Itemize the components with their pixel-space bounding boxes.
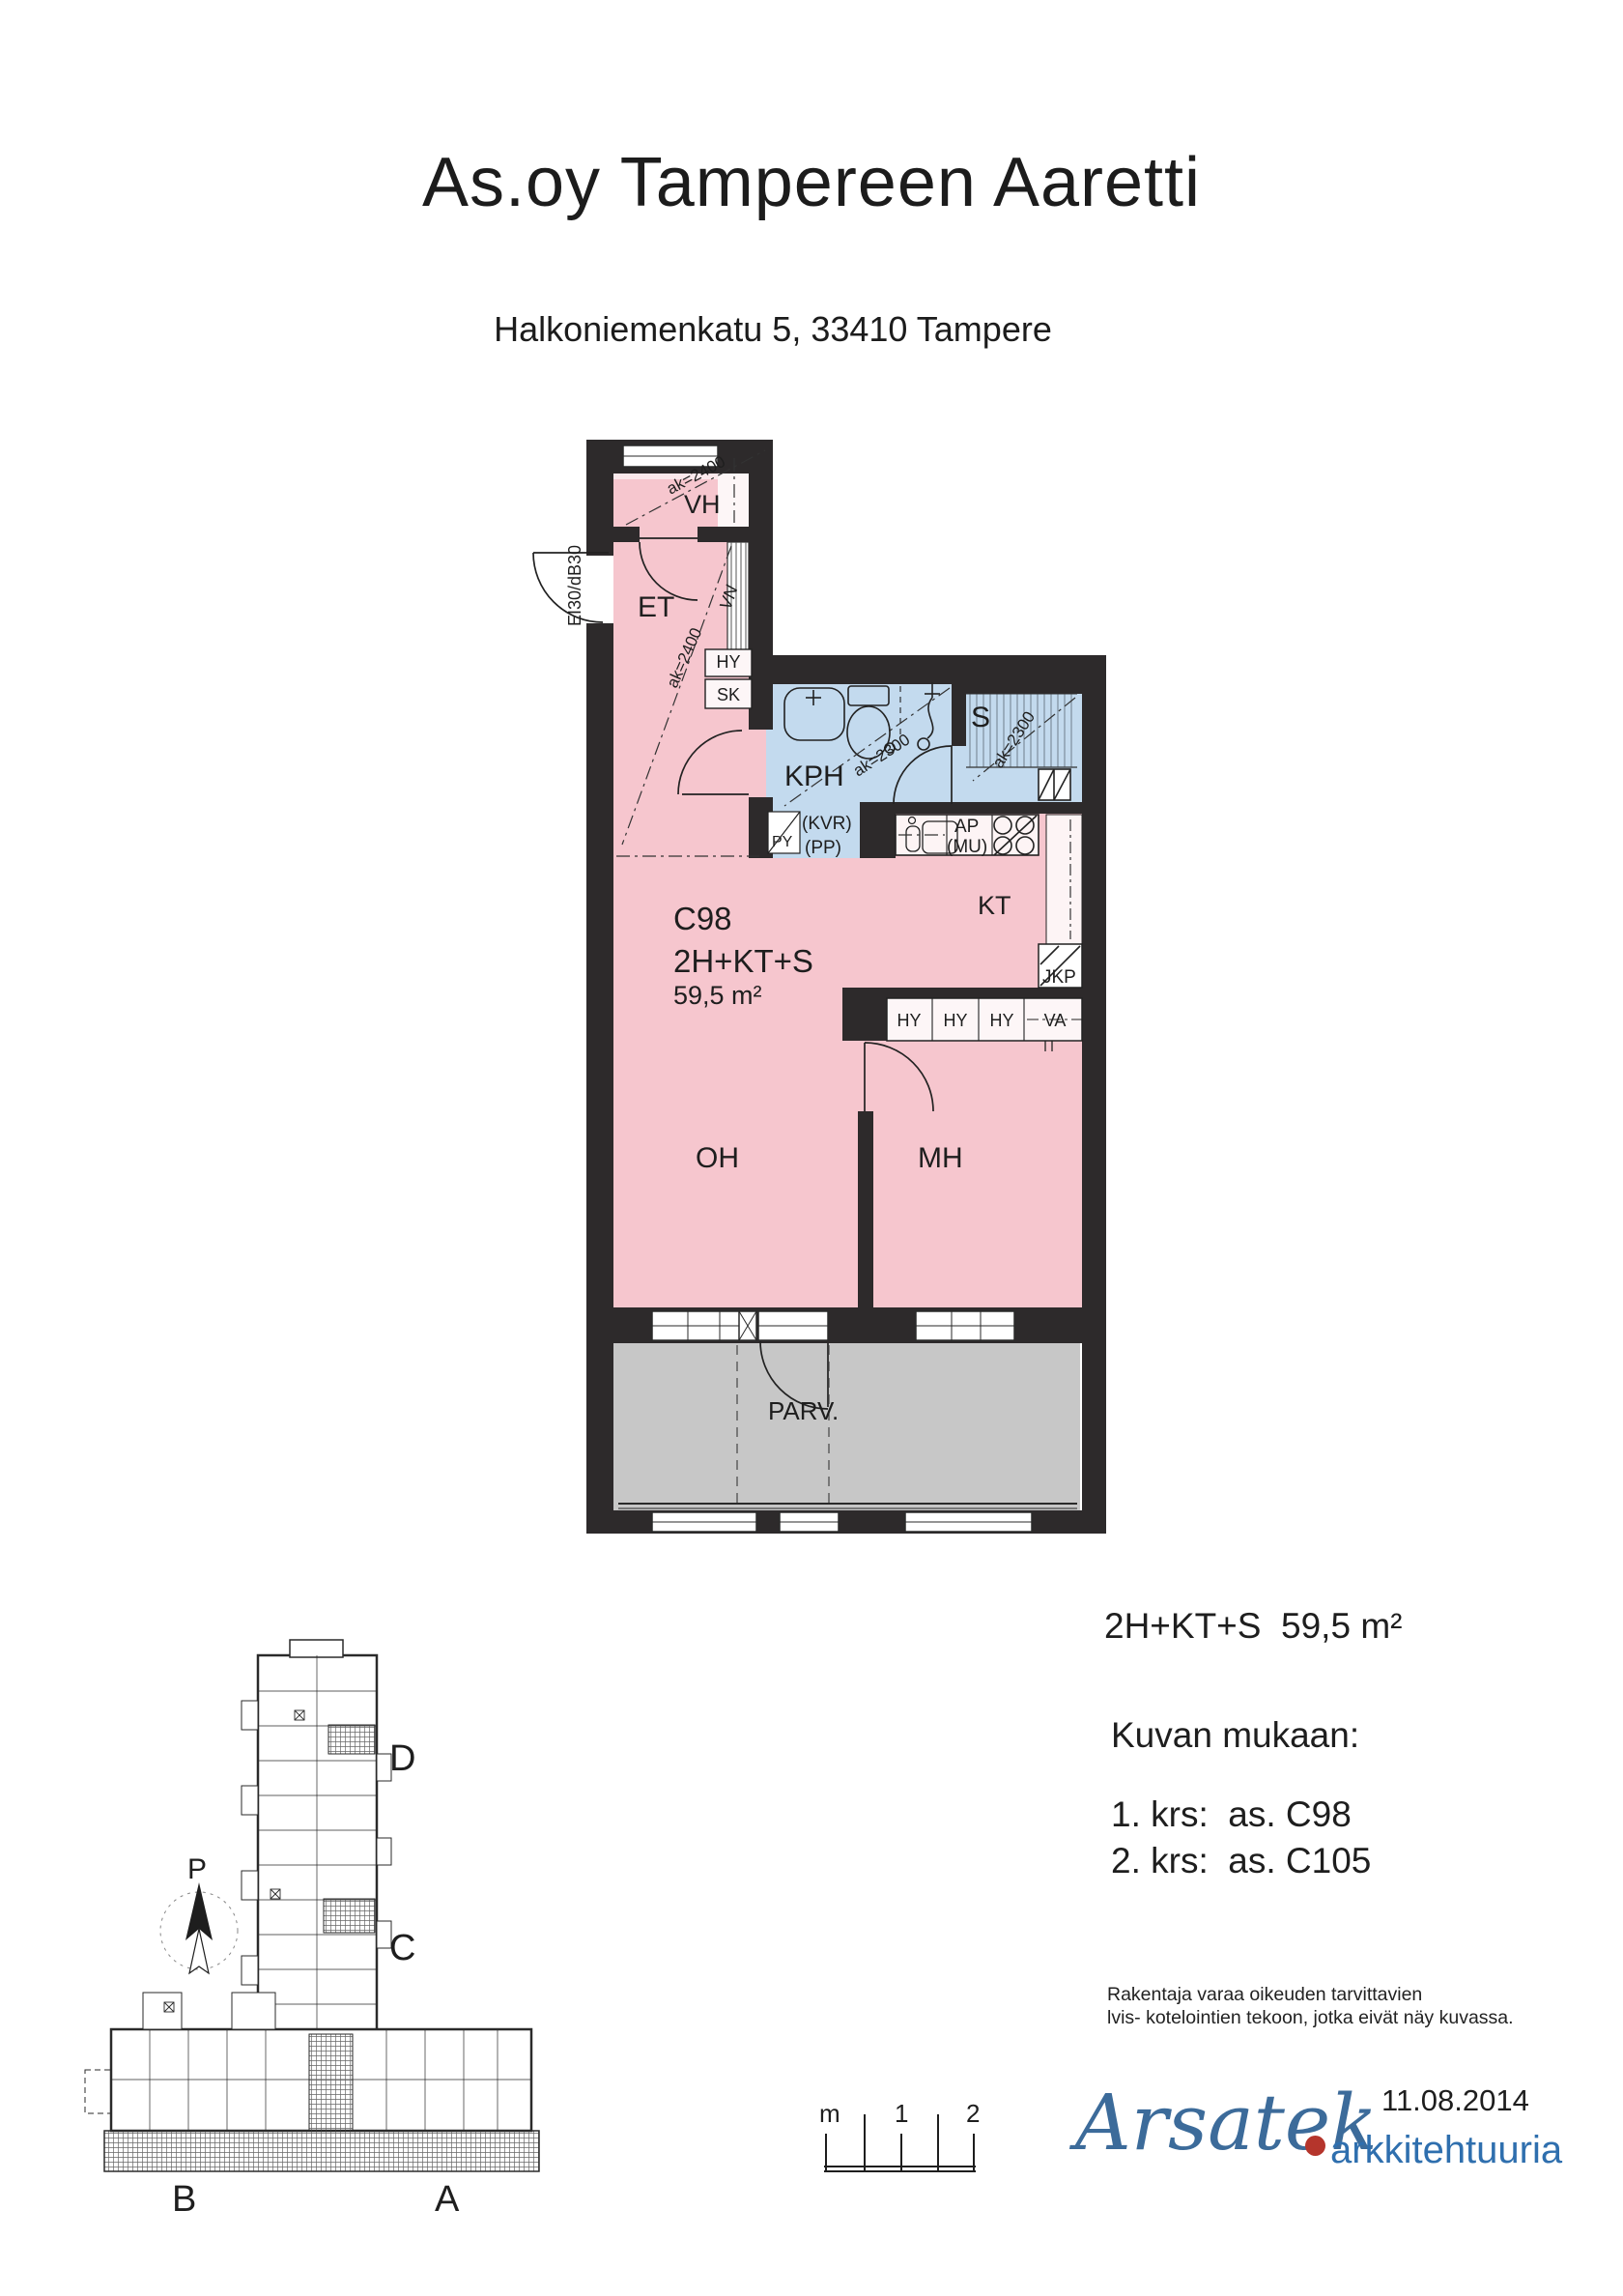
north-arrow-icon (160, 1882, 238, 1973)
label-mu: (MU) (947, 837, 987, 857)
label-hy-3: HY (989, 1011, 1013, 1030)
label-pp: (PP) (805, 838, 841, 858)
unit-type: 2H+KT+S (673, 943, 813, 979)
room-label-oh: OH (696, 1142, 739, 1174)
room-label-et: ET (638, 591, 674, 623)
disclaimer-line-2: lvis- kotelointien tekoon, jotka eivät n… (1107, 2006, 1514, 2029)
label-py: PY (772, 834, 793, 850)
unit-area: 59,5 m² (673, 981, 762, 1010)
info-heading: Kuvan mukaan: (1111, 1715, 1359, 1756)
room-label-parv: PARV. (768, 1396, 839, 1425)
page-title: As.oy Tampereen Aaretti (0, 143, 1623, 222)
plan-date: 11.08.2014 (1381, 2083, 1529, 2118)
floor-2-unit: 2. krs: as. C105 (1111, 1841, 1371, 1881)
label-ap: AP (954, 817, 979, 837)
scale-bar: m 1 2 (811, 2087, 995, 2184)
room-label-mh: MH (918, 1142, 963, 1174)
room-label-kph: KPH (784, 761, 844, 792)
site-plan: P D C B A (58, 1633, 560, 2242)
label-kvr: (KVR) (802, 814, 852, 834)
scale-mid: 1 (895, 2099, 908, 2128)
label-entry-door: EI30/dB30 (565, 545, 584, 626)
label-hy-2: HY (943, 1011, 967, 1030)
scale-unit: m (819, 2099, 840, 2128)
room-label-kt: KT (978, 891, 1011, 920)
label-va: VA (1044, 1011, 1067, 1030)
room-label-vh: VH (684, 490, 721, 519)
north-label: P (187, 1853, 207, 1885)
unit-id: C98 (673, 901, 732, 936)
logo-dot-icon (1305, 2136, 1325, 2156)
disclaimer: Rakentaja varaa oikeuden tarvittavien lv… (1107, 1983, 1514, 2029)
sauna-heater-icon (1039, 769, 1070, 800)
unit-summary: 2H+KT+S 59,5 m² (1104, 1606, 1402, 1647)
label-hy-hall: HY (716, 652, 740, 672)
architect-logo-tagline: arkkitehtuuria (1330, 2129, 1562, 2172)
floor-plan: VH ET KPH S KT OH MH PARV. C98 2H+KT+S 5… (529, 414, 1117, 1542)
wing-label-a: A (435, 2179, 460, 2220)
document-page: As.oy Tampereen Aaretti Halkoniemenkatu … (0, 0, 1623, 2296)
site-building (85, 1640, 539, 2171)
label-hy-1: HY (897, 1011, 921, 1030)
wing-label-d: D (389, 1738, 415, 1779)
label-jkp: JKP (1042, 967, 1076, 988)
room-label-sauna: S (971, 702, 990, 733)
floor-1-unit: 1. krs: as. C98 (1111, 1794, 1352, 1835)
label-sk: SK (717, 685, 740, 704)
page-subtitle: Halkoniemenkatu 5, 33410 Tampere (0, 309, 1546, 350)
disclaimer-line-1: Rakentaja varaa oikeuden tarvittavien (1107, 1983, 1514, 2006)
wing-label-c: C (389, 1928, 415, 1968)
scale-end: 2 (966, 2099, 980, 2128)
wing-label-b: B (172, 2179, 196, 2220)
